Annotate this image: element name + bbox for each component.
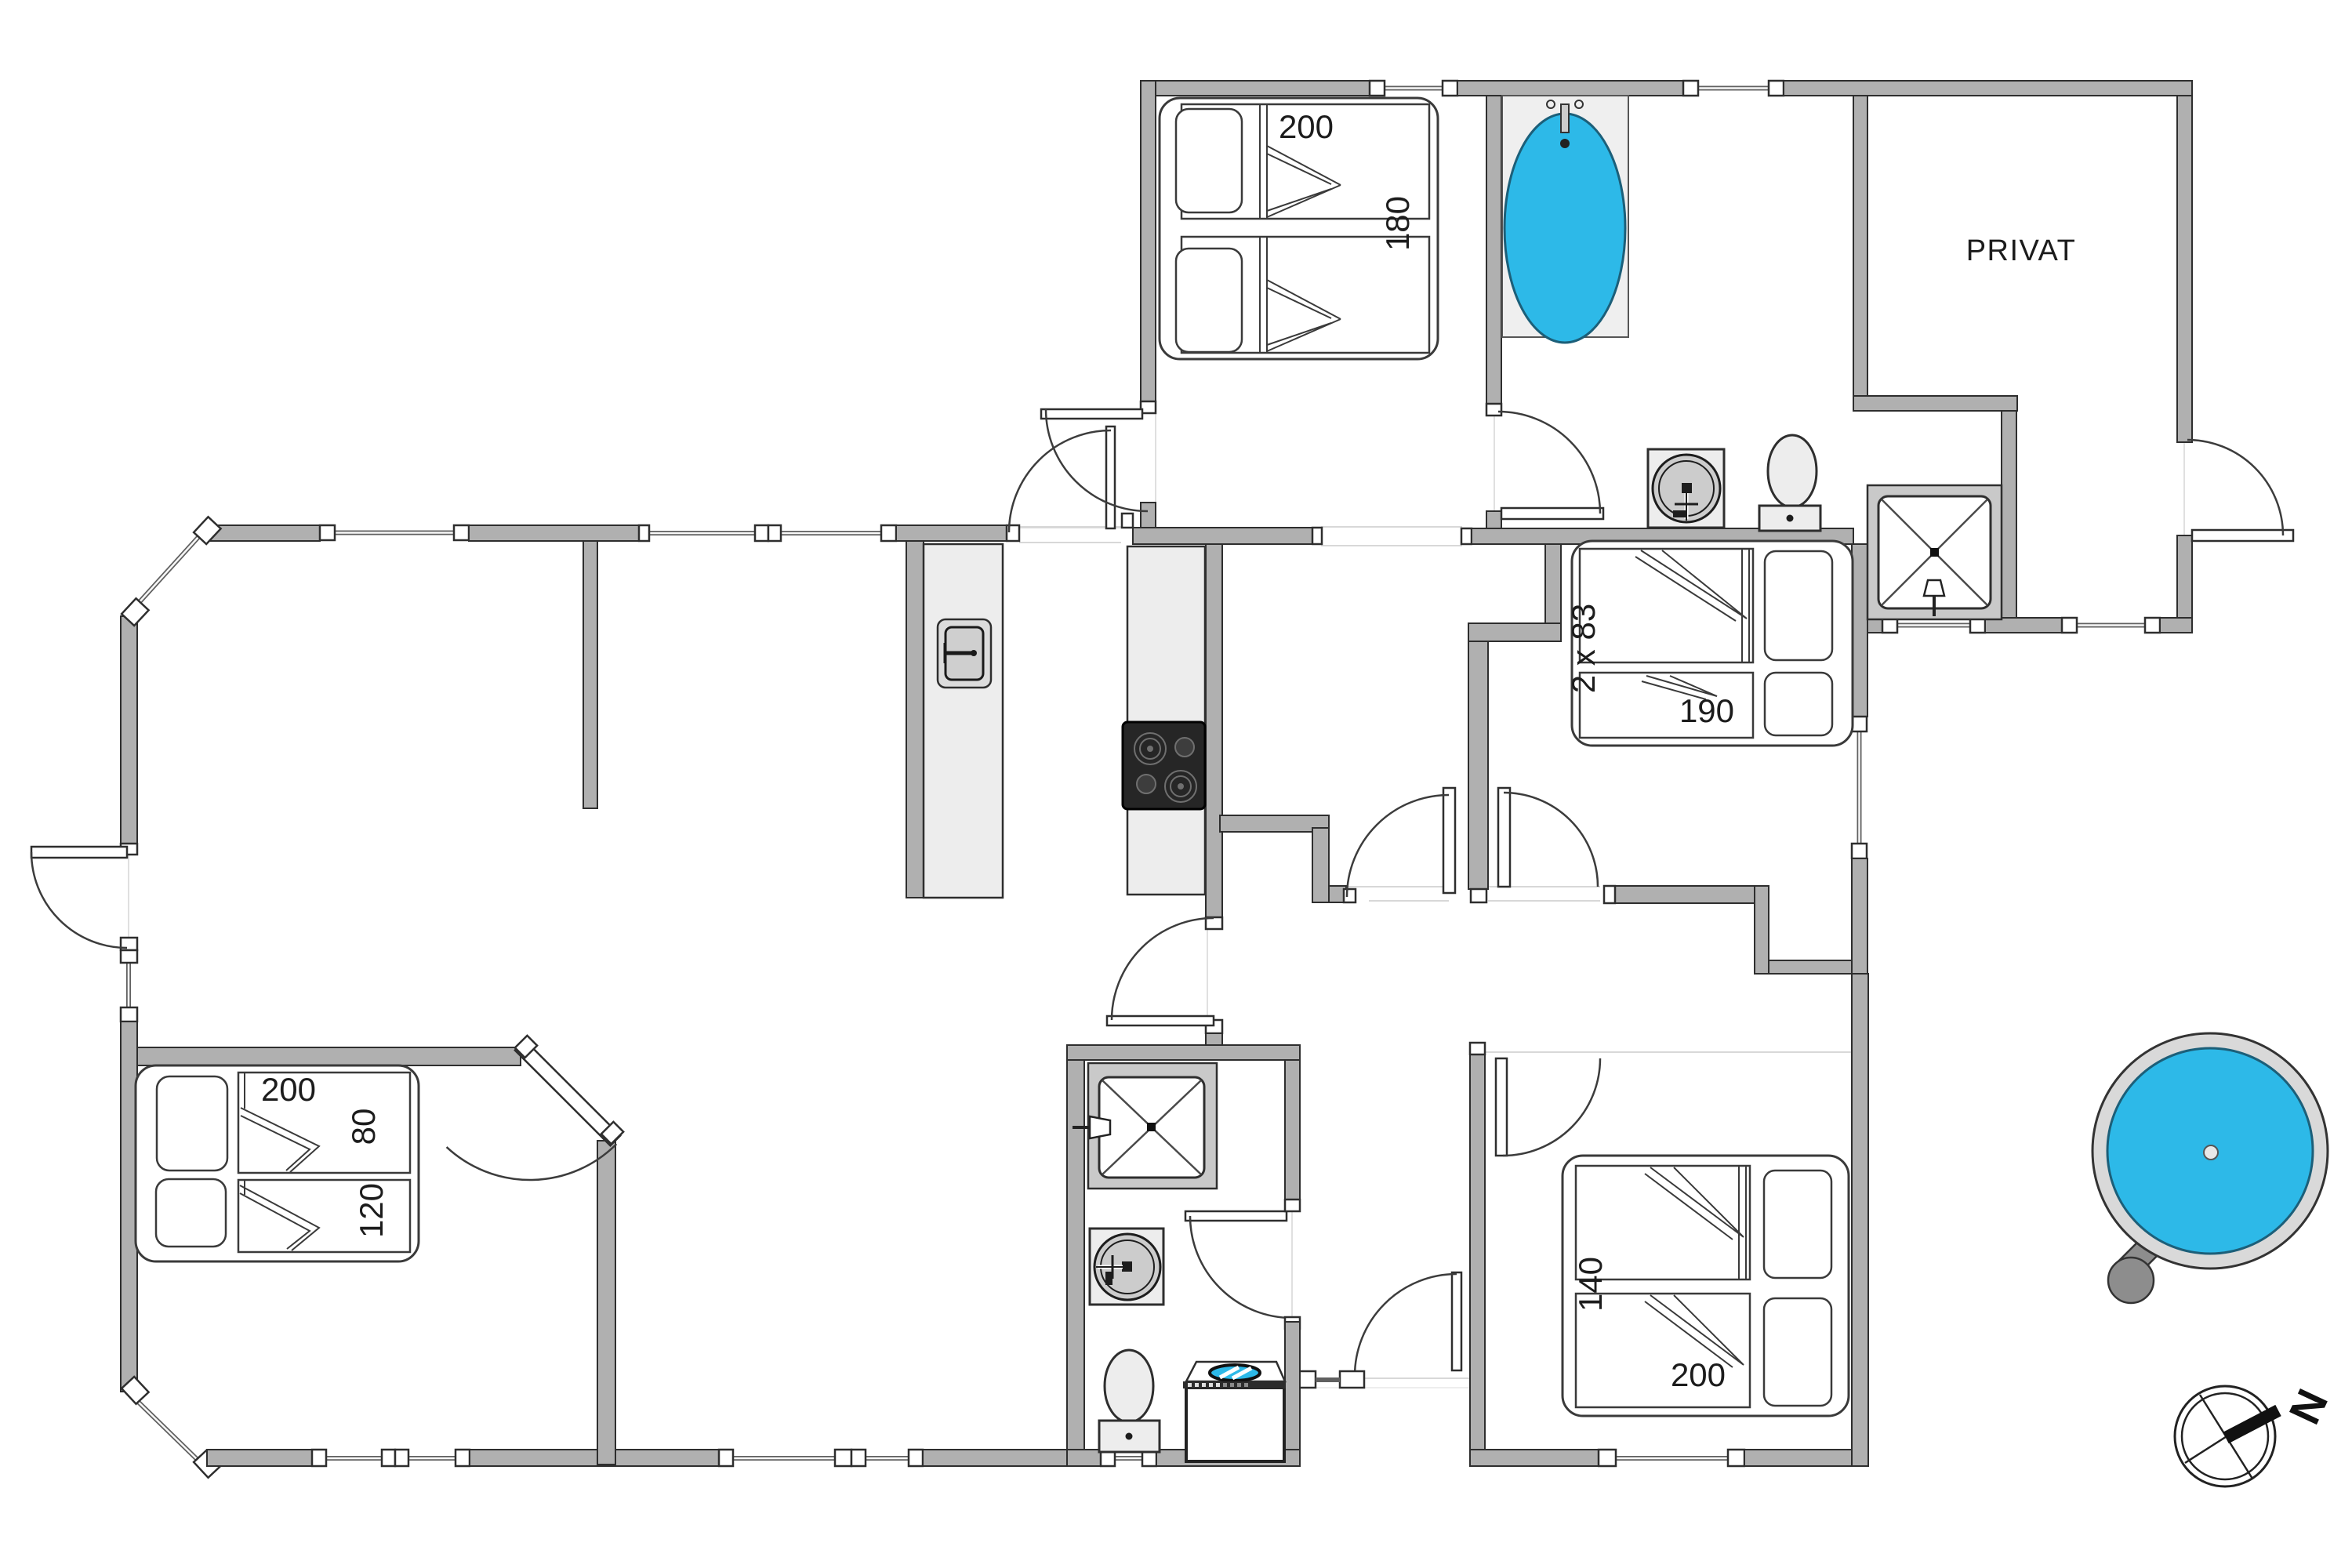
svg-text:2 x 83: 2 x 83 bbox=[1565, 604, 1602, 693]
svg-text:120: 120 bbox=[353, 1183, 390, 1238]
svg-text:200: 200 bbox=[1671, 1356, 1726, 1393]
svg-text:PRIVAT: PRIVAT bbox=[1966, 234, 2077, 267]
svg-text:180: 180 bbox=[1379, 196, 1416, 251]
svg-text:140: 140 bbox=[1572, 1257, 1609, 1312]
svg-text:200: 200 bbox=[261, 1071, 316, 1108]
svg-text:80: 80 bbox=[345, 1109, 382, 1145]
svg-text:190: 190 bbox=[1679, 692, 1734, 729]
svg-text:200: 200 bbox=[1279, 108, 1334, 145]
